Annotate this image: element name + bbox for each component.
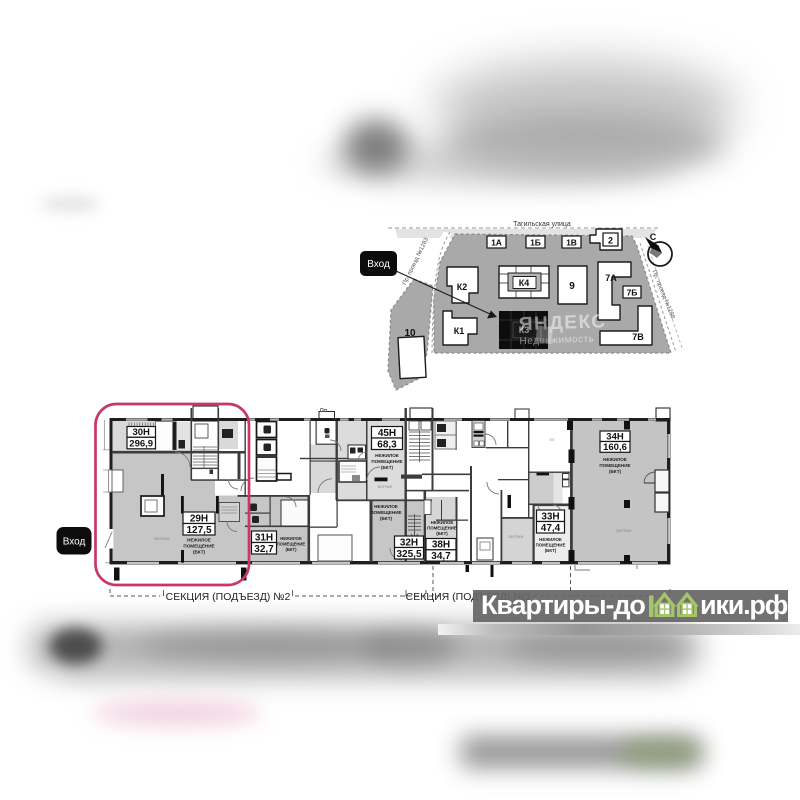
svg-text:(БКТ): (БКТ) xyxy=(285,547,297,552)
svg-text:Вход: Вход xyxy=(367,259,390,270)
svg-text:ВИТРАЖ: ВИТРАЖ xyxy=(616,529,632,533)
svg-text:С: С xyxy=(650,232,657,242)
svg-text:33Н: 33Н xyxy=(541,511,559,522)
svg-text:ПОМЕЩЕНИЕ: ПОМЕЩЕНИЕ xyxy=(370,510,401,515)
svg-text:(БКТ): (БКТ) xyxy=(545,548,557,553)
svg-text:НЕЖИЛОЕ: НЕЖИЛОЕ xyxy=(603,457,627,462)
svg-text:32,7: 32,7 xyxy=(254,544,274,555)
svg-text:296,9: 296,9 xyxy=(129,439,153,450)
svg-text:31Н: 31Н xyxy=(255,532,273,543)
svg-text:10: 10 xyxy=(404,328,416,339)
svg-text:НЕЖИЛОЕ: НЕЖИЛОЕ xyxy=(539,537,562,542)
svg-text:ПОМЕЩЕНИЕ: ПОМЕЩЕНИЕ xyxy=(371,459,402,464)
svg-text:7Б: 7Б xyxy=(627,288,638,298)
svg-text:НЕЖИЛОЕ: НЕЖИЛОЕ xyxy=(187,538,211,543)
svg-text:НЕЖИЛОЕ: НЕЖИЛОЕ xyxy=(431,520,454,525)
svg-text:НЕЖИЛОЕ: НЕЖИЛОЕ xyxy=(280,536,302,541)
svg-text:34Н: 34Н xyxy=(606,432,624,443)
svg-text:НЕЖИЛОЕ: НЕЖИЛОЕ xyxy=(374,504,398,509)
svg-text:30Н: 30Н xyxy=(132,427,150,438)
svg-text:НЕЖИЛОЕ: НЕЖИЛОЕ xyxy=(375,453,399,458)
svg-text:СЕКЦИЯ (ПОДЪЕЗД) №2: СЕКЦИЯ (ПОДЪЕЗД) №2 xyxy=(166,591,291,603)
svg-text:(БКТ): (БКТ) xyxy=(380,516,393,521)
svg-text:68,3: 68,3 xyxy=(377,439,397,450)
svg-text:325,5: 325,5 xyxy=(396,549,421,560)
svg-text:9: 9 xyxy=(569,281,575,292)
svg-text:7В: 7В xyxy=(632,332,644,342)
svg-text:ПОМЕЩЕНИЕ: ПОМЕЩЕНИЕ xyxy=(536,543,566,548)
svg-text:ПОМЕЩЕНИЕ: ПОМЕЩЕНИЕ xyxy=(427,526,457,531)
svg-text:ВИТРАЖ: ВИТРАЖ xyxy=(154,537,170,541)
svg-text:127,5: 127,5 xyxy=(186,525,211,536)
svg-text:7А: 7А xyxy=(605,273,617,283)
svg-text:(БКТ): (БКТ) xyxy=(436,531,448,536)
svg-text:47,4: 47,4 xyxy=(541,523,561,534)
svg-text:ЯНДЕКС: ЯНДЕКС xyxy=(519,311,607,335)
svg-text:160,6: 160,6 xyxy=(603,442,627,453)
svg-text:45Н: 45Н xyxy=(378,428,396,439)
svg-text:1В: 1В xyxy=(566,238,577,248)
svg-text:2: 2 xyxy=(608,236,613,246)
svg-text:К2: К2 xyxy=(457,282,468,292)
svg-text:К1: К1 xyxy=(454,326,465,336)
svg-text:К4: К4 xyxy=(519,278,530,288)
svg-text:ПОМЕЩЕНИЕ: ПОМЕЩЕНИЕ xyxy=(183,544,214,549)
svg-text:Тагильская улица: Тагильская улица xyxy=(513,221,571,228)
svg-text:Вход: Вход xyxy=(63,537,86,548)
svg-text:ВИТРАЖ: ВИТРАЖ xyxy=(378,485,393,489)
svg-text:ВИТРАЖ: ВИТРАЖ xyxy=(508,535,524,539)
svg-text:32Н: 32Н xyxy=(400,537,418,548)
svg-text:1Б: 1Б xyxy=(530,238,541,248)
svg-text:1А: 1А xyxy=(491,238,502,248)
svg-text:ПОМЕЩЕНИЕ: ПОМЕЩЕНИЕ xyxy=(599,463,630,468)
svg-text:(БКТ): (БКТ) xyxy=(193,550,206,555)
svg-text:(БКТ): (БКТ) xyxy=(609,469,622,474)
svg-text:КХ: КХ xyxy=(550,438,555,442)
svg-text:29Н: 29Н xyxy=(190,513,208,524)
svg-text:34,7: 34,7 xyxy=(431,551,451,562)
svg-text:38Н: 38Н xyxy=(432,540,450,551)
svg-text:(БКТ): (БКТ) xyxy=(381,465,394,470)
svg-text:ПОМЕЩЕНИЕ: ПОМЕЩЕНИЕ xyxy=(277,542,306,547)
